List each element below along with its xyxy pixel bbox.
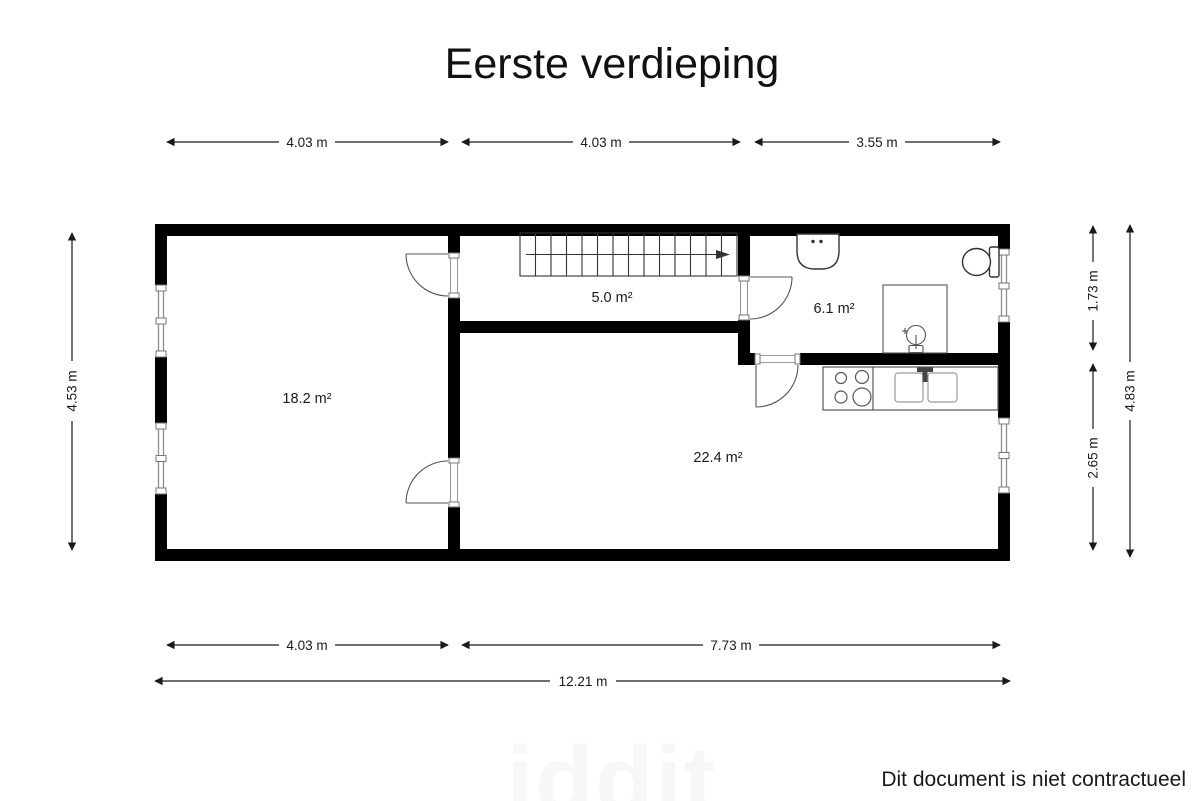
sink-faucet-icon (917, 368, 933, 373)
kitchen-wall-segment (738, 353, 755, 365)
washbasin-icon (797, 234, 839, 269)
dim-top-2: 4.03 m (580, 135, 621, 150)
watermark: iddit (507, 727, 717, 801)
kitchen-wall-segment (800, 353, 1010, 365)
dimension-left: 4.53 m (64, 233, 80, 550)
window (154, 285, 168, 357)
sink-faucet-icon (923, 372, 928, 382)
disclaimer-text: Dit document is niet contractueel (881, 768, 1186, 791)
door-frame (449, 458, 459, 507)
toilet-bowl (963, 249, 991, 276)
dim-right-inner-2: 2.65 m (1086, 437, 1101, 478)
dim-bottom-2: 7.73 m (710, 638, 751, 653)
dim-right-inner-1: 1.73 m (1086, 270, 1101, 311)
room-label-left-room: 18.2 m² (282, 391, 331, 407)
washbasin-tap-dot (819, 240, 822, 243)
bathroom-fixtures (797, 234, 999, 353)
washbasin-tap-dot (811, 240, 814, 243)
middle-wall-segment (448, 224, 460, 253)
room-label-living-kitchen: 22.4 m² (693, 450, 742, 466)
door-swing (406, 461, 448, 503)
dim-bottom-1: 4.03 m (286, 638, 327, 653)
stairs (520, 233, 737, 276)
dimensions-right: 1.73 m 2.65 m 4.83 m (1085, 225, 1138, 557)
door-frame (739, 276, 749, 320)
door-swing (406, 254, 448, 296)
sink-basin (928, 373, 957, 402)
window (997, 418, 1011, 493)
middle-wall-segment (448, 507, 460, 561)
dim-top-1: 4.03 m (286, 135, 327, 150)
door-swing (750, 277, 792, 319)
stair-direction-arrow (716, 250, 730, 259)
floorplan-drawing: Eerste verdieping (0, 0, 1200, 801)
dimensions-bottom: 4.03 m 7.73 m 12.21 m (155, 637, 1010, 690)
door-swing (756, 365, 798, 407)
shower-enclosure (883, 285, 947, 353)
page-title: Eerste verdieping (445, 40, 780, 88)
dim-left: 4.53 m (65, 370, 80, 411)
room-labels: 18.2 m² 5.0 m² 6.1 m² 22.4 m² (282, 290, 854, 466)
bathroom-wall-segment (738, 224, 750, 276)
dimensions-top: 4.03 m 4.03 m 3.55 m (167, 134, 1000, 151)
dim-right-outer: 4.83 m (1123, 370, 1138, 411)
door-frame (755, 354, 800, 364)
room-label-bathroom: 6.1 m² (813, 301, 854, 317)
dim-bottom-total: 12.21 m (559, 674, 608, 689)
door-frame (449, 253, 459, 298)
hallway-wall (448, 321, 750, 333)
floorplan-page: Eerste verdieping (0, 0, 1200, 801)
sink-basin (895, 373, 923, 402)
kitchen-fixtures (823, 367, 998, 410)
window (154, 423, 168, 494)
dim-top-3: 3.55 m (856, 135, 897, 150)
room-label-hallway: 5.0 m² (591, 290, 632, 306)
